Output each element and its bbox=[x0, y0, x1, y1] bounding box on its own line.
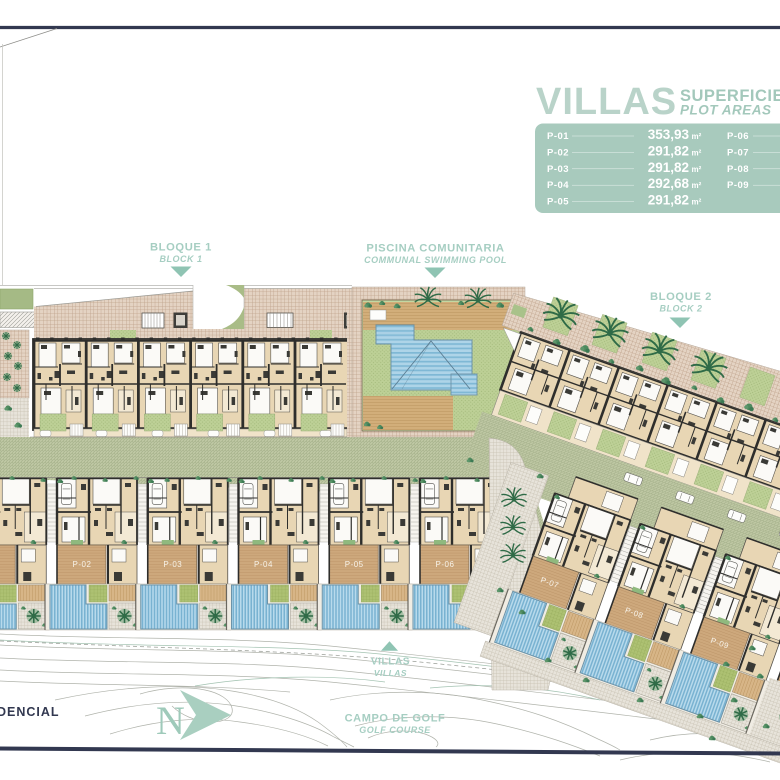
svg-text:BLOQUE 1: BLOQUE 1 bbox=[150, 242, 212, 254]
svg-text:VILLAS: VILLAS bbox=[374, 668, 407, 678]
svg-text:P-08: P-08 bbox=[727, 164, 749, 175]
svg-text:P-06: P-06 bbox=[436, 560, 455, 569]
svg-text:P-02: P-02 bbox=[547, 147, 569, 158]
svg-text:m²: m² bbox=[692, 132, 702, 141]
svg-text:PISCINA COMUNITARIA: PISCINA COMUNITARIA bbox=[366, 243, 504, 255]
svg-text:PLOT AREAS: PLOT AREAS bbox=[680, 103, 772, 118]
svg-text:VILLAS: VILLAS bbox=[371, 657, 410, 668]
svg-text:P-04: P-04 bbox=[547, 180, 569, 191]
svg-text:P-03: P-03 bbox=[163, 560, 182, 569]
svg-text:BLOCK 1: BLOCK 1 bbox=[159, 254, 202, 264]
svg-text:COMMUNAL SWIMMING POOL: COMMUNAL SWIMMING POOL bbox=[364, 255, 507, 265]
svg-text:353,93: 353,93 bbox=[648, 127, 690, 142]
svg-text:m²: m² bbox=[692, 165, 702, 174]
svg-text:291,82: 291,82 bbox=[648, 193, 689, 208]
svg-text:m²: m² bbox=[692, 148, 702, 157]
svg-text:P-09: P-09 bbox=[727, 180, 749, 191]
svg-text:292,68: 292,68 bbox=[648, 176, 690, 191]
svg-text:P-01: P-01 bbox=[0, 560, 1, 569]
svg-text:VILLAS: VILLAS bbox=[536, 81, 677, 123]
svg-text:GOLF COURSE: GOLF COURSE bbox=[359, 725, 431, 735]
svg-text:CAMPO DE GOLF: CAMPO DE GOLF bbox=[345, 713, 446, 725]
svg-text:DENCIAL: DENCIAL bbox=[0, 705, 60, 719]
svg-text:BLOQUE 2: BLOQUE 2 bbox=[650, 291, 712, 303]
svg-text:291,82: 291,82 bbox=[648, 143, 689, 158]
svg-text:P-05: P-05 bbox=[547, 197, 569, 208]
svg-text:P-01: P-01 bbox=[547, 131, 569, 142]
svg-text:P-03: P-03 bbox=[547, 164, 569, 175]
svg-text:P-02: P-02 bbox=[73, 560, 92, 569]
svg-text:m²: m² bbox=[692, 181, 702, 190]
svg-text:P-07: P-07 bbox=[727, 147, 749, 158]
svg-text:m²: m² bbox=[692, 198, 702, 207]
svg-text:N: N bbox=[156, 698, 185, 743]
svg-text:P-05: P-05 bbox=[345, 560, 364, 569]
svg-text:291,82: 291,82 bbox=[648, 160, 689, 175]
svg-text:BLOCK 2: BLOCK 2 bbox=[659, 304, 702, 314]
svg-text:P-06: P-06 bbox=[727, 131, 749, 142]
svg-text:P-04: P-04 bbox=[254, 560, 273, 569]
